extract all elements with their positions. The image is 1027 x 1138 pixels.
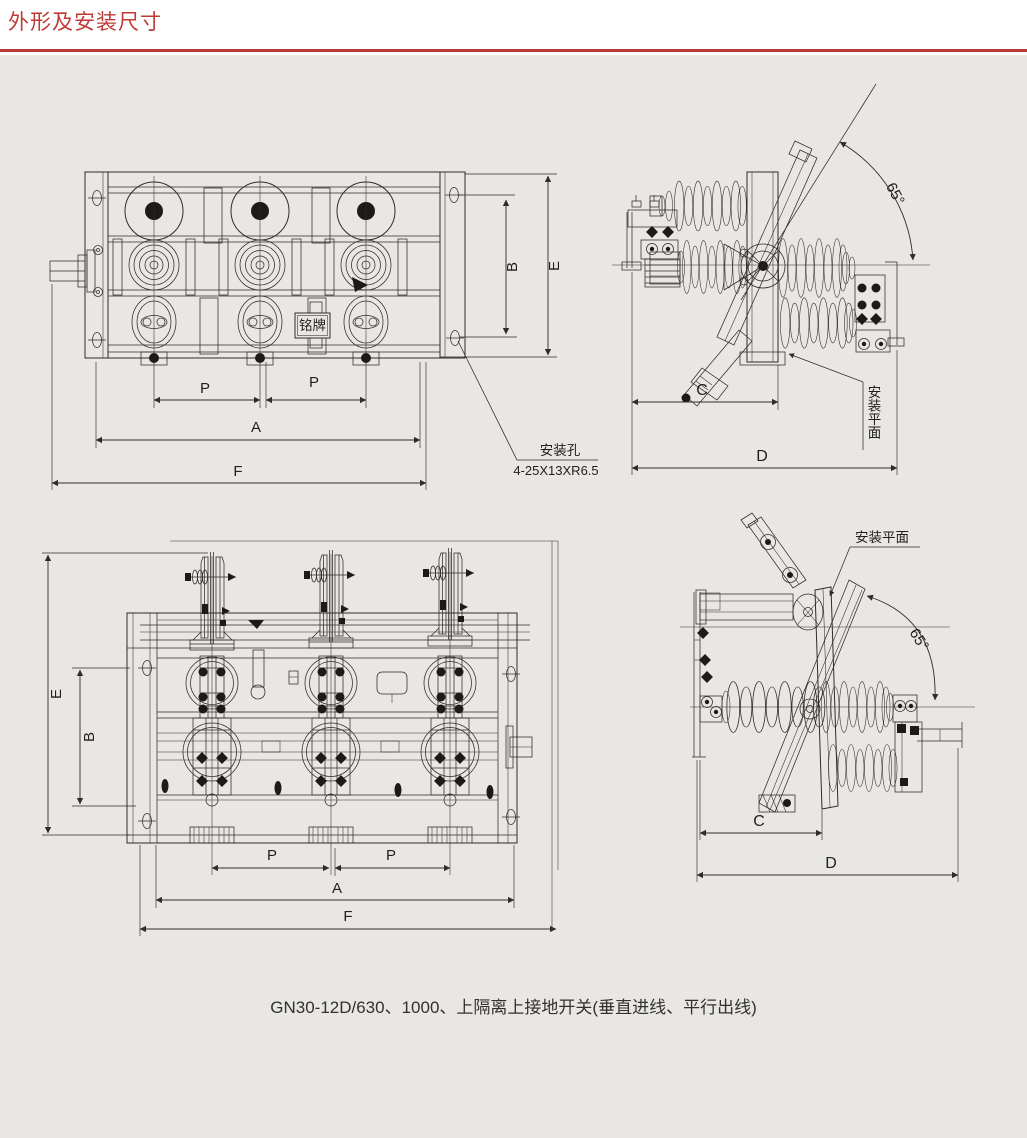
mounting-plane-label-top: 安装平面 [866, 385, 882, 440]
dim-label-A-bottom: A [332, 880, 342, 897]
dim-label-B-bottom: B [81, 732, 98, 742]
dim-label-A-top: A [251, 419, 261, 436]
catalog-page: 外形及安装尺寸 [0, 0, 1027, 1138]
side-view-top: 65° 安装平面 C D [612, 84, 930, 475]
dim-label-E-bottom: E [48, 689, 65, 699]
side-view-bottom: 安装平面 [680, 513, 975, 882]
dim-label-E-top: E [546, 261, 563, 271]
figure-caption: GN30-12D/630、1000、上隔离上接地开关(垂直进线、平行出线) [0, 993, 1027, 1018]
front-view-bottom: E B P P A F [42, 541, 558, 936]
dim-label-D-bottom: D [825, 855, 837, 872]
mounting-hole-label: 安装孔 [540, 443, 581, 458]
dim-label-D-top: D [756, 448, 768, 465]
dim-label-P2-top: P [309, 374, 319, 391]
dim-label-P1-bottom: P [267, 847, 277, 864]
dim-label-C-bottom: C [753, 813, 765, 830]
drawing-area: 铭牌 B E P P [0, 55, 1027, 1138]
dim-label-F-bottom: F [343, 908, 352, 925]
dim-label-P2-bottom: P [386, 847, 396, 864]
technical-drawing: 铭牌 B E P P [0, 0, 1027, 1138]
dim-label-F-top: F [233, 463, 242, 480]
dim-label-C-top: C [696, 382, 708, 399]
nameplate-label: 铭牌 [299, 317, 326, 333]
mounting-hole-spec: 4-25X13XR6.5 [513, 463, 598, 478]
dim-label-B-top: B [504, 262, 521, 272]
dim-label-P1-top: P [200, 380, 210, 397]
front-view-top: 铭牌 B E P P [50, 172, 599, 490]
mounting-plane-label-bottom: 安装平面 [855, 530, 909, 545]
